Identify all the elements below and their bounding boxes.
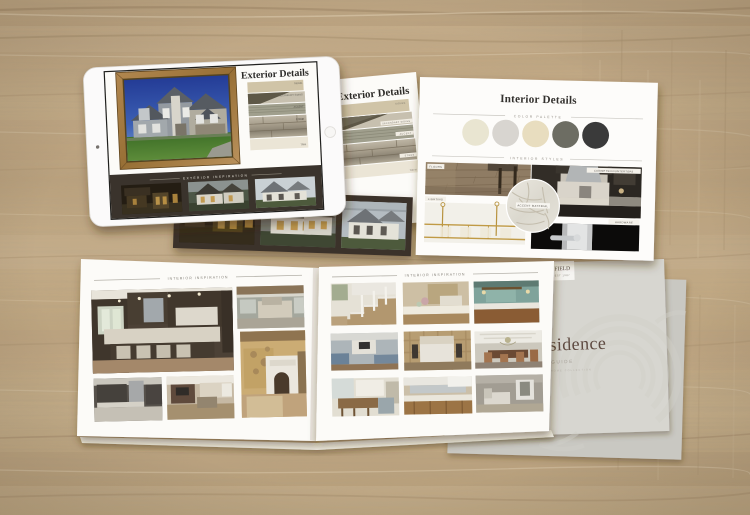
svg-text:FIELD: FIELD (554, 266, 570, 272)
svg-text:ACCENT: ACCENT (294, 105, 304, 108)
svg-text:ACCENT MATERIAL: ACCENT MATERIAL (517, 203, 548, 208)
svg-text:LIGHTING: LIGHTING (428, 197, 444, 201)
svg-text:SIDING: SIDING (294, 82, 303, 85)
svg-text:STONE: STONE (296, 118, 305, 121)
svg-text:TRIM: TRIM (300, 143, 306, 146)
svg-text:Interior Details: Interior Details (500, 93, 577, 107)
svg-text:FLOORS: FLOORS (429, 165, 442, 169)
svg-text:EST 1987: EST 1987 (555, 274, 571, 277)
svg-text:HARDWARE: HARDWARE (615, 220, 633, 224)
